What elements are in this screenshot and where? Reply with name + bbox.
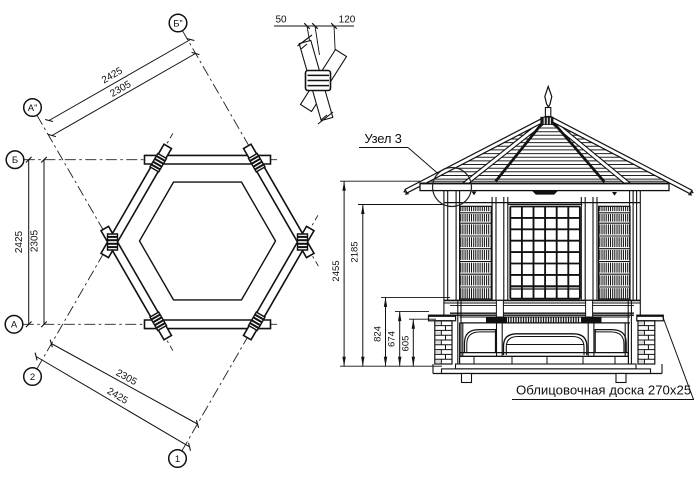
- svg-text:120: 120: [339, 15, 356, 26]
- svg-text:Узел 3: Узел 3: [364, 131, 401, 146]
- svg-text:50: 50: [275, 15, 287, 26]
- svg-text:Б”: Б”: [173, 18, 182, 29]
- svg-text:2305: 2305: [30, 229, 41, 252]
- svg-text:Б: Б: [12, 155, 18, 166]
- svg-text:605: 605: [400, 336, 411, 352]
- svg-text:2185: 2185: [350, 241, 361, 262]
- svg-text:Облицовочная доска 270х25: Облицовочная доска 270х25: [516, 383, 691, 398]
- svg-text:824: 824: [372, 326, 383, 342]
- svg-text:1: 1: [175, 454, 180, 465]
- svg-text:А: А: [11, 320, 18, 331]
- svg-text:674: 674: [387, 331, 398, 347]
- svg-text:2425: 2425: [14, 230, 25, 253]
- svg-text:А”: А”: [28, 103, 38, 114]
- svg-text:2: 2: [30, 372, 35, 383]
- svg-text:2455: 2455: [331, 260, 342, 281]
